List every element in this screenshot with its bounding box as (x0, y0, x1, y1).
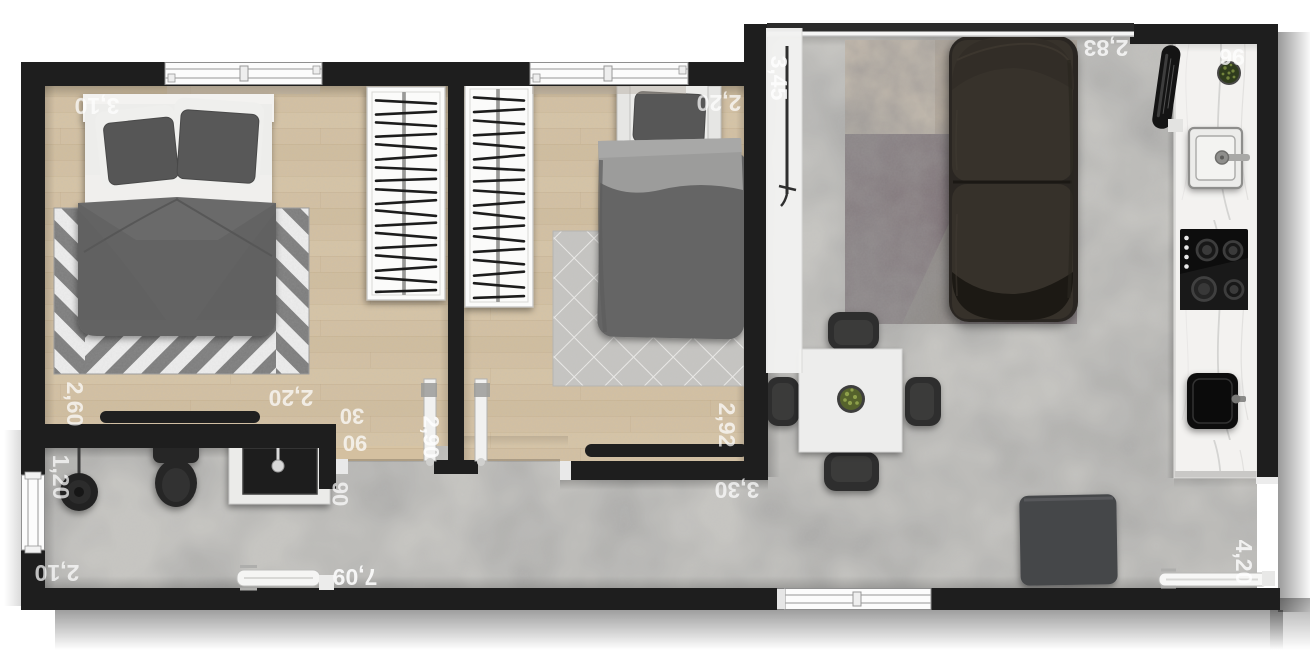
svg-text:3,30: 3,30 (715, 477, 760, 503)
svg-text:96: 96 (1219, 44, 1245, 70)
svg-text:3,10: 3,10 (75, 93, 120, 119)
svg-text:2,83: 2,83 (1084, 35, 1129, 61)
svg-text:30: 30 (340, 403, 364, 428)
svg-text:2,90: 2,90 (418, 416, 443, 459)
svg-text:90: 90 (327, 482, 352, 506)
svg-text:2,92: 2,92 (714, 403, 740, 448)
svg-text:2,60: 2,60 (62, 382, 88, 427)
svg-text:2,10: 2,10 (35, 560, 80, 586)
svg-text:1,20: 1,20 (48, 455, 74, 500)
svg-text:2,20: 2,20 (269, 385, 314, 411)
svg-text:3,45: 3,45 (766, 56, 792, 101)
svg-text:7,09: 7,09 (333, 564, 378, 590)
svg-text:4,20: 4,20 (1231, 540, 1257, 585)
svg-text:2,20: 2,20 (697, 90, 742, 116)
svg-text:90: 90 (343, 430, 367, 455)
